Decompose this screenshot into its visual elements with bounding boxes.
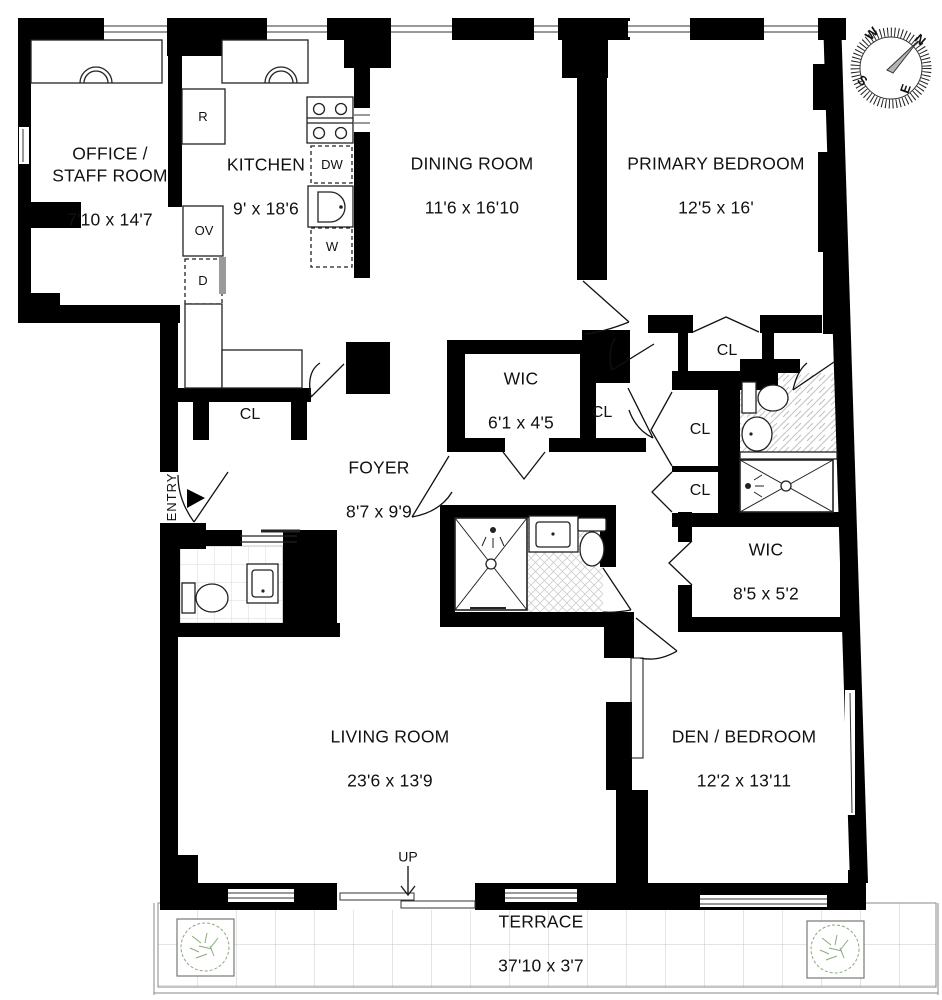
toilet-tank xyxy=(742,382,756,413)
oven-icon xyxy=(183,206,223,256)
toilet-tank xyxy=(182,583,195,613)
toilet-icon xyxy=(758,385,788,411)
kitchen-passthrough xyxy=(354,108,370,132)
primary-closet-bifold-door xyxy=(693,317,759,332)
washer-icon xyxy=(311,228,352,267)
compass-icon xyxy=(855,32,927,104)
kitchen-door xyxy=(310,363,344,397)
den-window xyxy=(700,895,827,907)
den-door xyxy=(636,618,677,659)
entry-arrow-icon xyxy=(187,489,205,508)
hall-closet-door xyxy=(628,388,653,438)
bath2-door xyxy=(603,568,631,612)
wic2-door xyxy=(669,541,692,585)
shower-curb xyxy=(740,452,837,459)
shower-head-icon xyxy=(490,527,496,533)
closet-mid-door xyxy=(651,392,672,466)
floor-plan: OFFICE / STAFF ROOM 7'10 x 14'7 KITCHEN … xyxy=(0,0,942,1000)
kitchen-counter-bottom xyxy=(222,350,302,388)
floor-plan-drawing xyxy=(0,0,942,1000)
office-counter xyxy=(31,40,162,83)
shower-head-icon xyxy=(745,483,751,489)
kitchen-counter-left xyxy=(185,304,222,388)
toilet-icon xyxy=(196,584,228,612)
dining-hall-door xyxy=(583,281,629,334)
dryer-door-mark xyxy=(219,257,226,294)
den-pocket-opening xyxy=(631,658,643,758)
living-window-1 xyxy=(228,889,294,902)
closet-low-door xyxy=(652,472,672,512)
refrigerator-icon xyxy=(182,89,225,144)
living-window-2 xyxy=(505,889,577,902)
sink-icon xyxy=(742,417,772,451)
office-window xyxy=(19,127,29,164)
dryer-icon xyxy=(185,259,222,304)
toilet-tank xyxy=(578,518,606,531)
wic1-bifold-door xyxy=(503,452,545,479)
dishwasher-icon xyxy=(311,146,352,183)
toilet-icon xyxy=(580,532,604,566)
